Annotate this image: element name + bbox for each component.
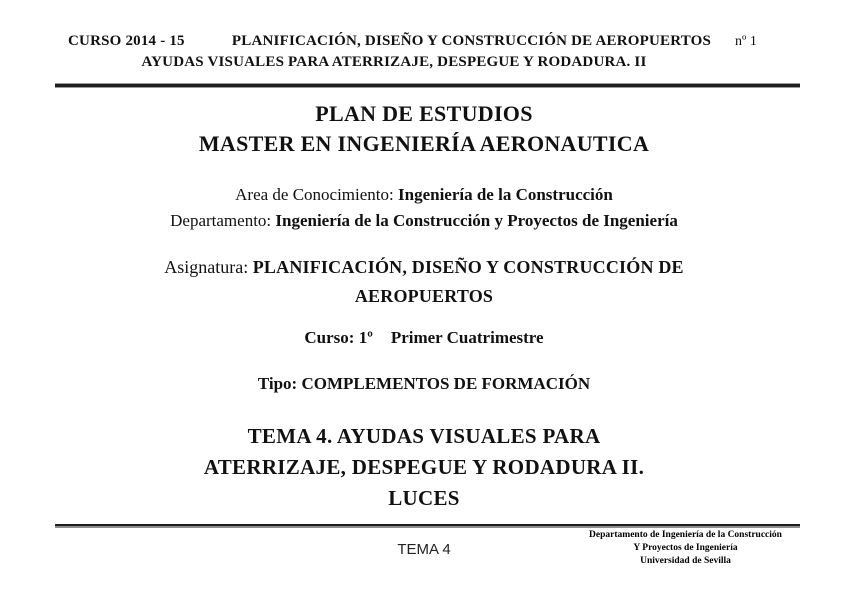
plan-title-line1: PLAN DE ESTUDIOS — [0, 99, 848, 129]
curso-label: Curso: 1º — [304, 328, 372, 347]
area-departamento-block: Area de Conocimiento: Ingeniería de la C… — [0, 182, 848, 234]
tipo-line: Tipo: COMPLEMENTOS DE FORMACIÓN — [0, 374, 848, 394]
header-title-line2: AYUDAS VISUALES PARA ATERRIZAJE, DESPEGU… — [0, 54, 788, 71]
departamento-label: Departamento: — [170, 211, 275, 230]
area-line: Area de Conocimiento: Ingeniería de la C… — [0, 182, 848, 208]
area-value: Ingeniería de la Construcción — [398, 185, 613, 204]
footer-department-line3: Universidad de Sevilla — [573, 555, 798, 568]
footer-department-block: Departamento de Ingeniería de la Constru… — [573, 529, 798, 568]
asignatura-block: Asignatura: PLANIFICACIÓN, DISEÑO Y CONS… — [0, 253, 848, 311]
area-label: Area de Conocimiento: — [235, 185, 398, 204]
header-page-number: nº 1 — [735, 34, 757, 50]
asignatura-value-line2: AEROPUERTOS — [0, 282, 848, 311]
curso-value: Primer Cuatrimestre — [391, 328, 544, 347]
bottom-divider-rule — [55, 524, 800, 528]
departamento-value: Ingeniería de la Construcción y Proyecto… — [275, 211, 677, 230]
curso-line: Curso: 1ºPrimer Cuatrimestre — [0, 328, 848, 348]
tema-title: TEMA 4. AYUDAS VISUALES PARA ATERRIZAJE,… — [0, 421, 848, 514]
plan-title: PLAN DE ESTUDIOS MASTER EN INGENIERÍA AE… — [0, 99, 848, 159]
footer-department-line1: Departamento de Ingeniería de la Constru… — [573, 529, 798, 542]
header-course-label: CURSO 2014 - 15 — [68, 33, 185, 50]
asignatura-label: Asignatura: — [164, 257, 252, 277]
header-title-line1: PLANIFICACIÓN, DISEÑO Y CONSTRUCCIÓN DE … — [205, 33, 738, 50]
asignatura-line1: Asignatura: PLANIFICACIÓN, DISEÑO Y CONS… — [0, 253, 848, 282]
asignatura-value-line1: PLANIFICACIÓN, DISEÑO Y CONSTRUCCIÓN DE — [253, 257, 684, 277]
page-header: CURSO 2014 - 15 PLANIFICACIÓN, DISEÑO Y … — [0, 0, 848, 84]
departamento-line: Departamento: Ingeniería de la Construcc… — [0, 208, 848, 234]
footer-department-line2: Y Proyectos de Ingeniería — [573, 542, 798, 555]
plan-title-line2: MASTER EN INGENIERÍA AERONAUTICA — [0, 129, 848, 159]
document-page: CURSO 2014 - 15 PLANIFICACIÓN, DISEÑO Y … — [0, 0, 848, 599]
tema-line3: LUCES — [0, 483, 848, 514]
top-divider-rule — [55, 83, 800, 88]
tema-line1: TEMA 4. AYUDAS VISUALES PARA — [0, 421, 848, 452]
tema-line2: ATERRIZAJE, DESPEGUE Y RODADURA II. — [0, 452, 848, 483]
